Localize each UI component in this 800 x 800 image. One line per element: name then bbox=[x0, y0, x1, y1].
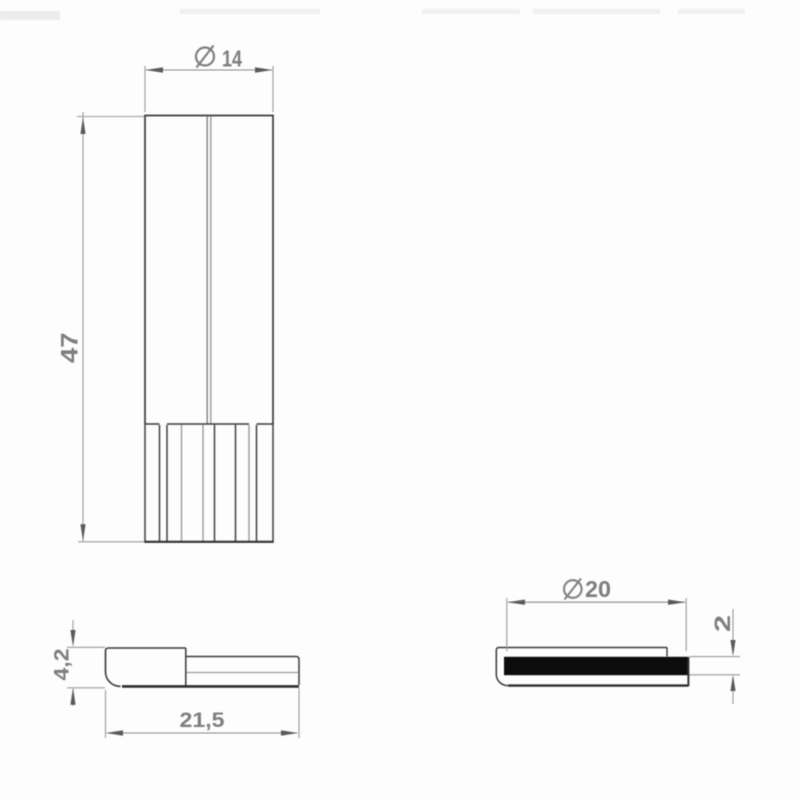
svg-text:20: 20 bbox=[585, 576, 611, 602]
svg-text:4,2: 4,2 bbox=[51, 649, 74, 681]
svg-text:14: 14 bbox=[222, 46, 242, 72]
svg-text:21,5: 21,5 bbox=[180, 708, 225, 732]
svg-text:2: 2 bbox=[710, 615, 735, 632]
svg-text:47: 47 bbox=[57, 333, 84, 364]
